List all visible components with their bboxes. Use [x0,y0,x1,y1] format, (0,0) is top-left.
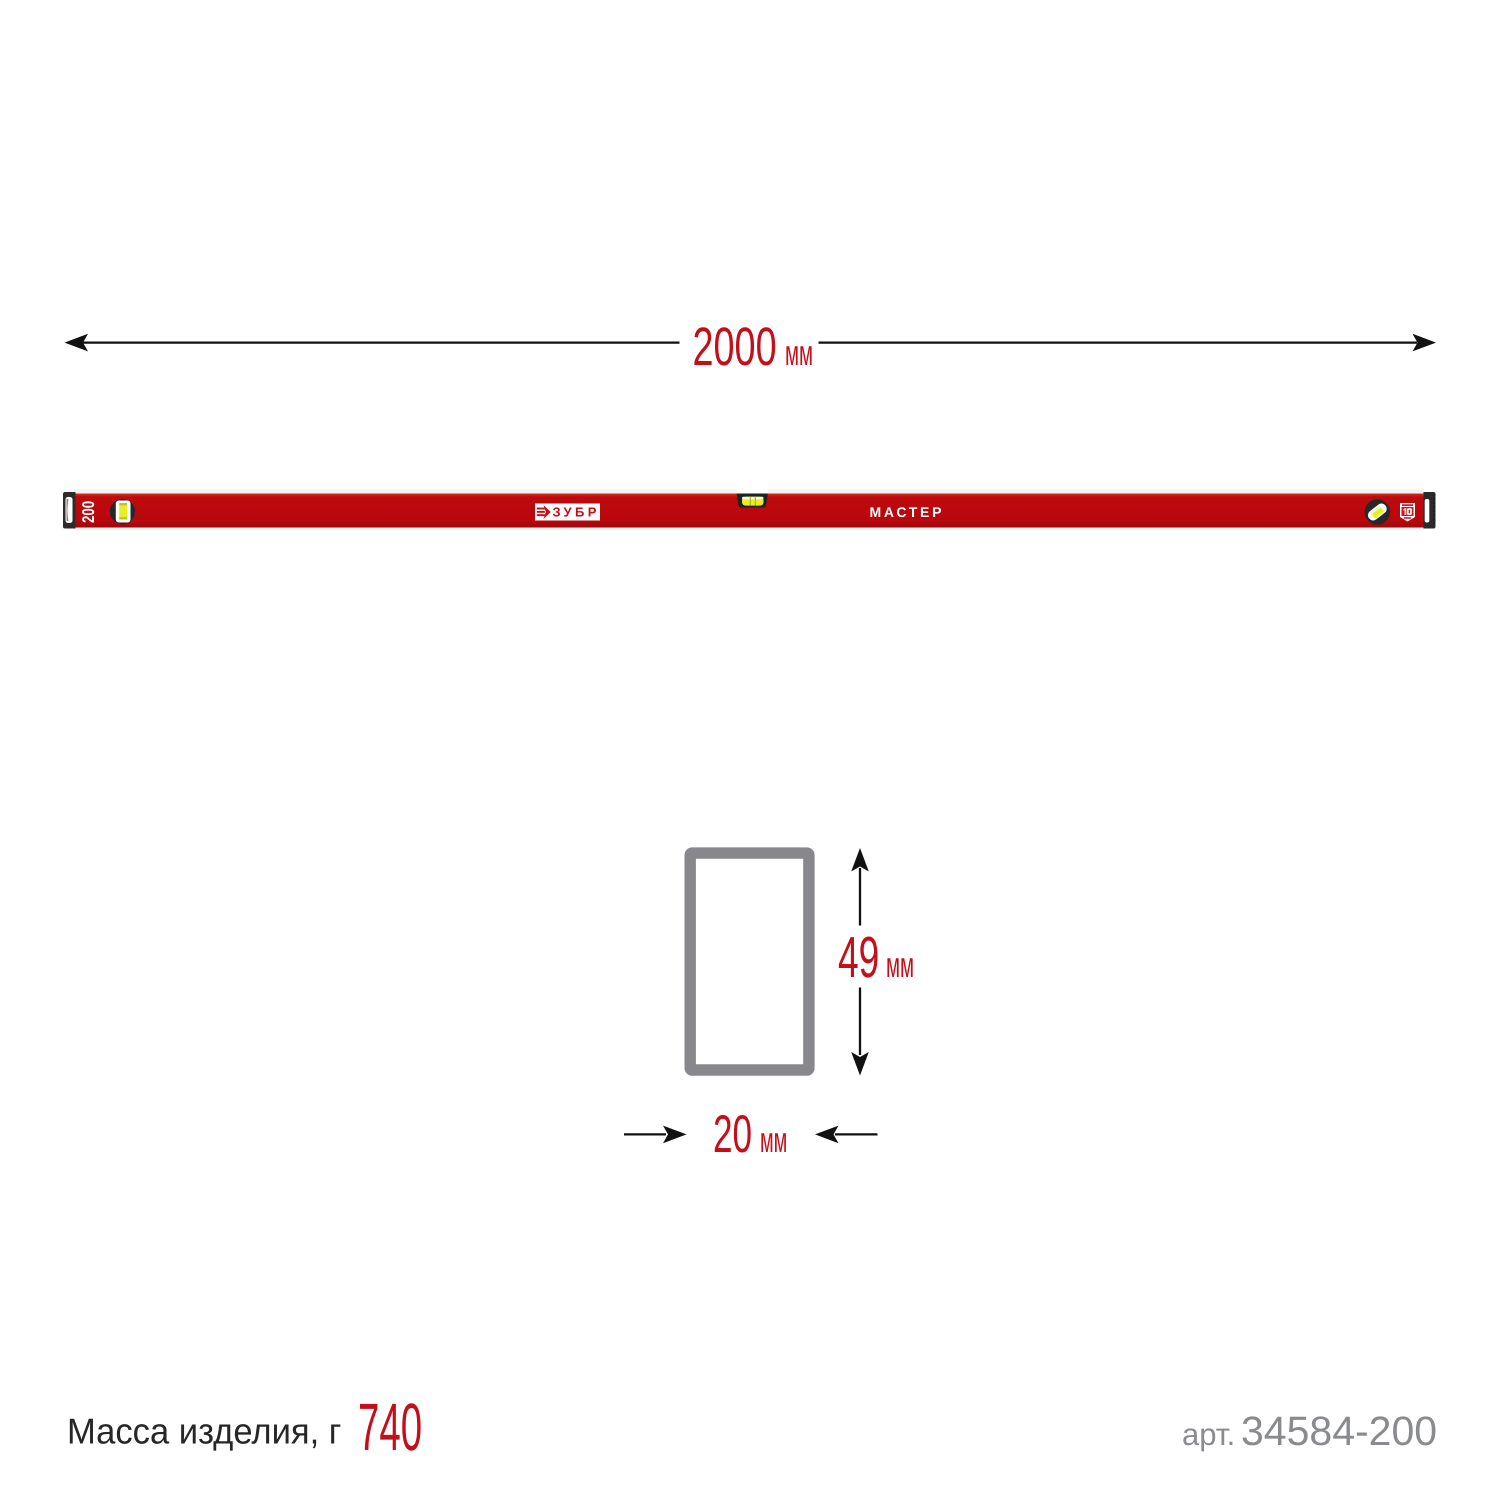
svg-text:МАСТЕР: МАСТЕР [870,504,945,520]
svg-text:мм: мм [760,1120,787,1160]
svg-text:ЗУБР: ЗУБР [553,504,600,519]
svg-text:мм: мм [886,945,914,985]
svg-text:арт.: арт. [1182,1417,1235,1452]
svg-text:740: 740 [358,1390,422,1465]
svg-text:Масса изделия, г: Масса изделия, г [67,1411,341,1452]
svg-text:20: 20 [713,1105,752,1164]
svg-text:49: 49 [838,925,879,990]
svg-text:2000: 2000 [693,317,777,377]
svg-text:мм: мм [785,333,813,373]
svg-text:200: 200 [79,501,98,523]
svg-text:34584-200: 34584-200 [1241,1408,1437,1454]
